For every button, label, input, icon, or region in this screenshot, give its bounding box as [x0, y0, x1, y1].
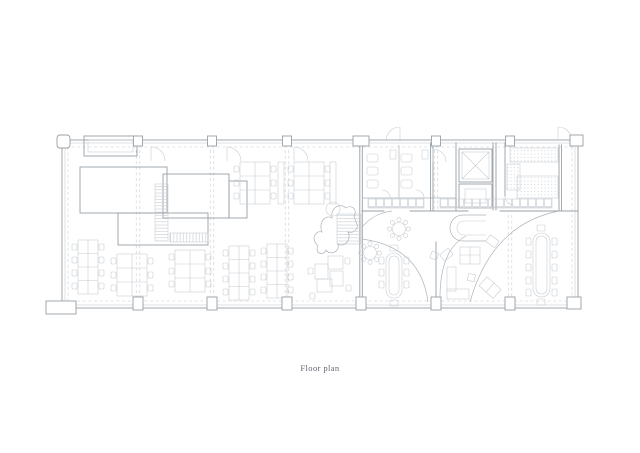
building-envelope [62, 140, 578, 308]
pinwheel-desk-cluster [308, 256, 351, 299]
drawing-page: Floor plan [0, 0, 640, 453]
storage-wall [368, 199, 552, 208]
workstation-area [72, 162, 351, 300]
entrance-canopy [84, 136, 137, 156]
figure-caption: Floor plan [300, 363, 340, 373]
meeting-pod-left [359, 218, 411, 306]
kitchen-room [507, 148, 558, 198]
locker-shelf [278, 162, 336, 204]
meeting-pod-right [526, 225, 557, 305]
wc-rooms [367, 150, 428, 188]
floor-plan-drawing: Floor plan [0, 0, 640, 453]
